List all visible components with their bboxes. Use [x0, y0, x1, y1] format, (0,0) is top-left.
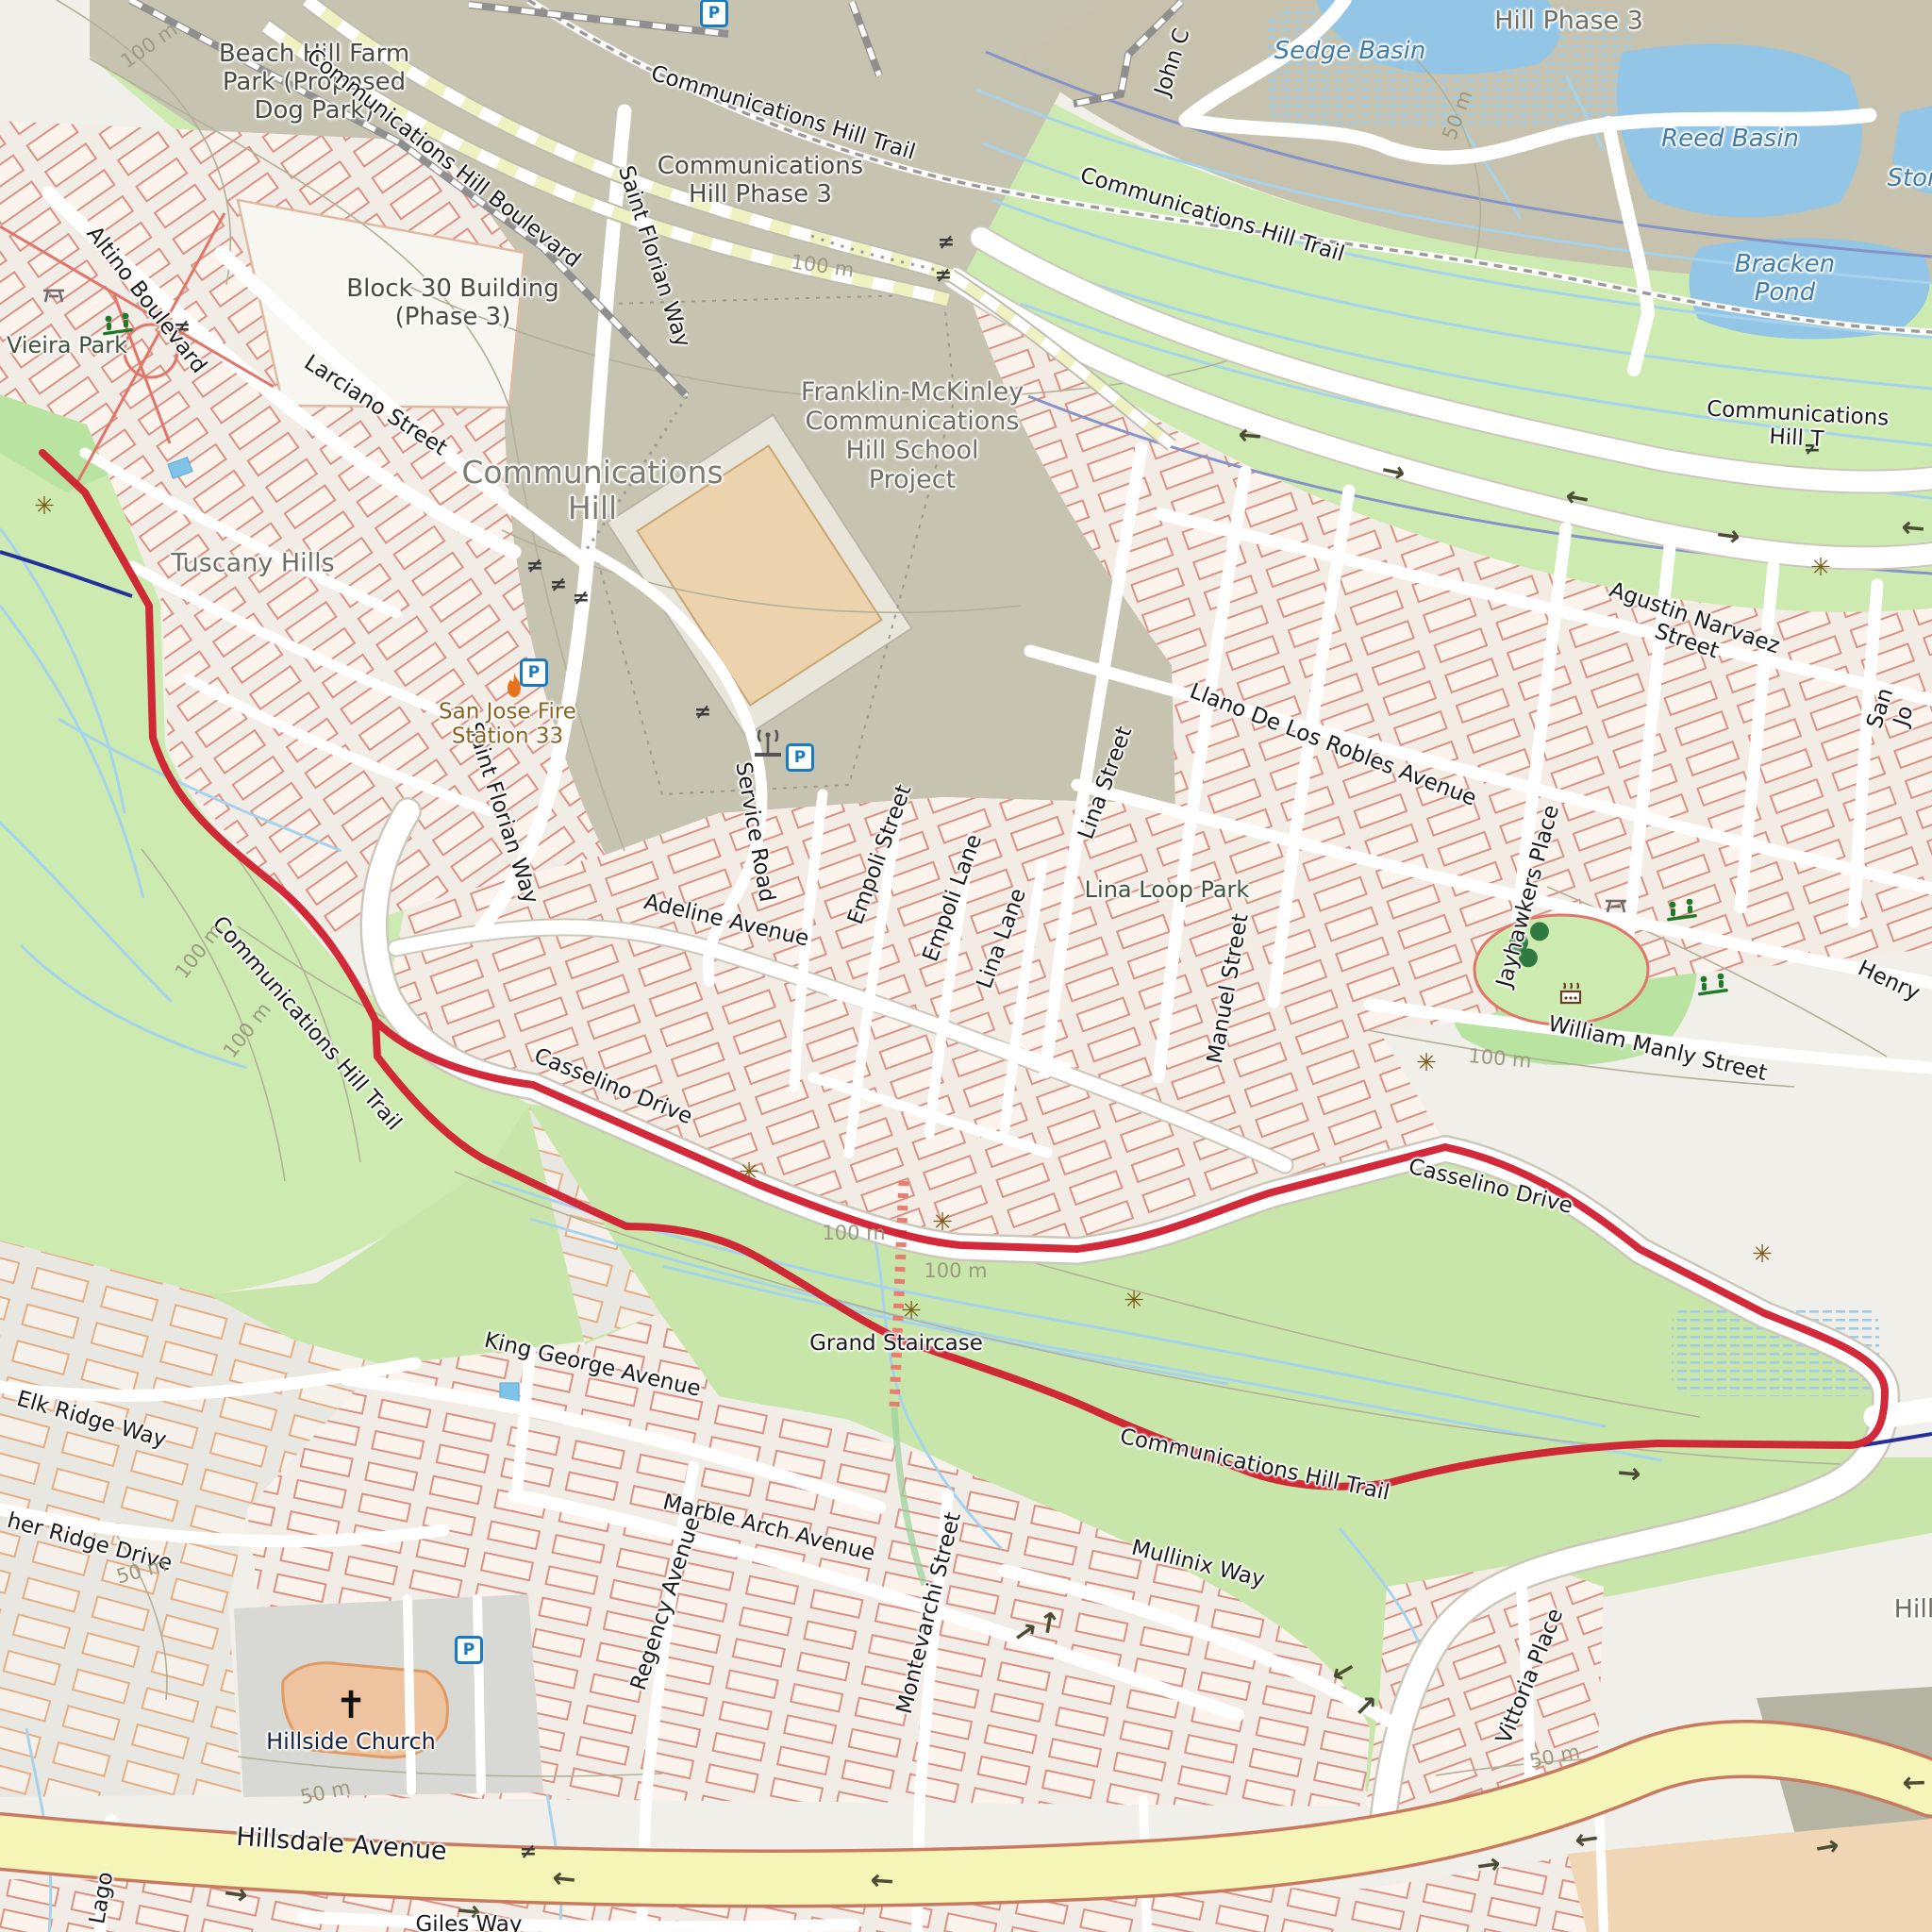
level-crossing-icon: ≠ — [935, 264, 952, 288]
oneway-arrow-icon: → — [1714, 518, 1742, 554]
oneway-arrow-icon: → — [1237, 418, 1263, 453]
viewpoint-icon: ✳ — [1810, 554, 1831, 582]
parking-icon: P — [700, 0, 728, 27]
oneway-arrow-icon: → — [456, 1893, 483, 1928]
viewpoint-icon: ✳ — [1416, 1049, 1437, 1077]
level-crossing-icon: ≠ — [520, 1840, 537, 1864]
parking-icon: P — [786, 743, 814, 772]
oneway-arrow-icon: → — [1573, 1822, 1601, 1857]
level-crossing-icon: ≠ — [573, 587, 590, 610]
viewpoint-icon: ✳ — [901, 1297, 922, 1325]
level-crossing-icon: ≠ — [694, 701, 711, 724]
level-crossing-icon: ≠ — [526, 555, 543, 578]
level-crossing-icon: ≠ — [1804, 437, 1821, 460]
parking-icon: P — [455, 1636, 483, 1664]
viewpoint-icon: ✳ — [34, 492, 55, 521]
level-crossing-icon: ≠ — [174, 316, 191, 340]
oneway-arrow-icon: → — [551, 1861, 578, 1896]
level-crossing-icon: ≠ — [938, 231, 955, 255]
map-base-layer — [0, 0, 1932, 1932]
oneway-arrow-icon: → — [1902, 1766, 1926, 1800]
oneway-arrow-icon: → — [1474, 1847, 1503, 1883]
viewpoint-icon: ✳ — [1124, 1287, 1144, 1315]
oneway-arrow-icon: → — [1900, 510, 1926, 545]
oneway-arrow-icon: → — [222, 1876, 250, 1912]
church-cross-icon: ✝ — [335, 1684, 367, 1727]
tree-icon: ● — [1518, 942, 1540, 971]
level-crossing-icon: ≠ — [550, 574, 567, 597]
viewpoint-icon: ✳ — [932, 1208, 953, 1237]
tree-icon: ● — [1529, 916, 1551, 944]
oneway-arrow-icon: → — [869, 1864, 895, 1899]
viewpoint-icon: ✳ — [739, 1158, 759, 1187]
map-canvas[interactable]: Beach Hill Farm Park (Proposed Dog Park)… — [0, 0, 1932, 1932]
viewpoint-icon: ✳ — [1752, 1241, 1773, 1269]
oneway-arrow-icon: → — [1616, 1456, 1642, 1491]
